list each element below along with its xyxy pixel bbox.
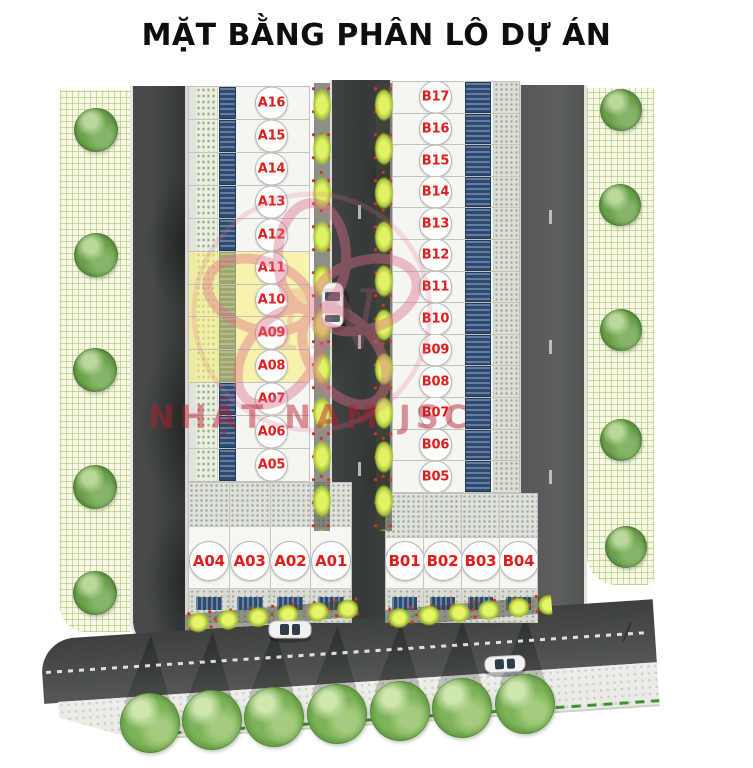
lot-courtyard bbox=[493, 461, 519, 492]
lot-B14[interactable]: B14 bbox=[393, 177, 519, 209]
lot-A07[interactable]: A07 bbox=[189, 383, 309, 416]
roof-panel bbox=[465, 430, 491, 461]
tree bbox=[495, 674, 555, 734]
lot-B13[interactable]: B13 bbox=[393, 208, 519, 240]
lot-courtyard bbox=[196, 383, 218, 415]
lot-label: A08 bbox=[258, 359, 286, 374]
roof-panel bbox=[465, 461, 491, 492]
lot-marker-B08[interactable]: B08 bbox=[419, 366, 452, 398]
lot-A12[interactable]: A12 bbox=[189, 219, 309, 252]
lot-B10[interactable]: B10 bbox=[393, 303, 519, 335]
lane-dash bbox=[358, 462, 361, 476]
roof-panel bbox=[219, 317, 236, 349]
roof-panel bbox=[219, 120, 236, 152]
tree bbox=[73, 465, 117, 509]
tree bbox=[74, 233, 118, 277]
lot-edge bbox=[189, 285, 196, 317]
lot-marker-A05[interactable]: A05 bbox=[255, 449, 288, 481]
lot-marker-B14[interactable]: B14 bbox=[419, 177, 452, 209]
lot-courtyard bbox=[196, 120, 218, 152]
lot-edge bbox=[189, 383, 196, 415]
lot-edge bbox=[189, 317, 196, 349]
lot-edge bbox=[189, 219, 196, 251]
subdivision-plan-page: MẶT BẰNG PHÂN LÔ DỰ ÁN A16A15A14A13A12A1… bbox=[0, 0, 753, 768]
lot-label: B12 bbox=[422, 248, 449, 263]
lot-edge bbox=[189, 449, 196, 481]
lot-marker-B06[interactable]: B06 bbox=[419, 430, 452, 462]
building-backs bbox=[230, 483, 270, 527]
lot-marker-A08[interactable]: A08 bbox=[255, 350, 288, 382]
roof-panel bbox=[465, 145, 491, 176]
lot-label: A12 bbox=[258, 227, 286, 242]
lot-courtyard bbox=[493, 240, 519, 271]
lot-courtyard bbox=[493, 430, 519, 461]
lot-label: A02 bbox=[274, 552, 306, 570]
lot-marker-A03[interactable]: A03 bbox=[230, 541, 270, 581]
lot-label: B07 bbox=[422, 406, 449, 421]
lot-label: B11 bbox=[422, 279, 449, 294]
building-backs bbox=[462, 494, 499, 538]
roof-panel bbox=[219, 285, 236, 317]
lot-A11[interactable]: A11 bbox=[189, 252, 309, 285]
lot-edge bbox=[189, 252, 196, 284]
lot-marker-A07[interactable]: A07 bbox=[255, 383, 288, 415]
lot-label: B15 bbox=[422, 153, 449, 168]
lot-edge bbox=[189, 416, 196, 448]
lot-A05[interactable]: A05 bbox=[189, 449, 309, 481]
lot-A06[interactable]: A06 bbox=[189, 416, 309, 449]
lot-edge bbox=[189, 153, 196, 185]
lot-B09[interactable]: B09 bbox=[393, 335, 519, 367]
hedge-block-b-left bbox=[371, 83, 397, 531]
lot-label: A05 bbox=[258, 458, 286, 473]
lane-dash bbox=[358, 205, 361, 219]
roof-panel bbox=[219, 383, 236, 415]
left-road bbox=[130, 86, 188, 648]
roof-panel bbox=[219, 252, 236, 284]
lot-A03[interactable]: A03 bbox=[230, 483, 271, 622]
building-backs bbox=[500, 494, 537, 538]
lot-courtyard bbox=[493, 303, 519, 334]
tree bbox=[307, 684, 367, 744]
tree bbox=[244, 687, 304, 747]
lot-marker-B11[interactable]: B11 bbox=[419, 272, 452, 304]
lot-B06[interactable]: B06 bbox=[393, 430, 519, 462]
roof-panel bbox=[465, 303, 491, 334]
roof-panel bbox=[465, 177, 491, 208]
lot-B16[interactable]: B16 bbox=[393, 114, 519, 146]
building-backs bbox=[189, 483, 229, 527]
lot-marker-A01[interactable]: A01 bbox=[311, 541, 351, 581]
lot-courtyard bbox=[493, 335, 519, 366]
lot-marker-A06[interactable]: A06 bbox=[255, 416, 288, 448]
roof-panel bbox=[465, 335, 491, 366]
lot-courtyard bbox=[196, 350, 218, 382]
lot-courtyard bbox=[196, 285, 218, 317]
lot-marker-B09[interactable]: B09 bbox=[419, 335, 452, 367]
lot-courtyard bbox=[196, 87, 218, 119]
tree bbox=[432, 678, 492, 738]
lot-label: B01 bbox=[389, 552, 421, 570]
lot-label: A07 bbox=[258, 392, 286, 407]
lot-label: A15 bbox=[258, 128, 286, 143]
lot-courtyard bbox=[196, 449, 218, 481]
tree bbox=[74, 108, 118, 152]
lot-label: B02 bbox=[427, 552, 459, 570]
lot-B07[interactable]: B07 bbox=[393, 398, 519, 430]
lot-A16[interactable]: A16 bbox=[189, 87, 309, 120]
lot-label: B10 bbox=[422, 311, 449, 326]
lot-A15[interactable]: A15 bbox=[189, 120, 309, 153]
lot-A04[interactable]: A04 bbox=[189, 483, 230, 622]
lot-edge bbox=[189, 186, 196, 218]
roof-panel bbox=[465, 240, 491, 271]
roof-panel bbox=[465, 366, 491, 397]
lot-B17[interactable]: B17 bbox=[393, 82, 519, 114]
building-backs bbox=[424, 494, 461, 538]
lot-B05[interactable]: B05 bbox=[393, 461, 519, 492]
lot-B08[interactable]: B08 bbox=[393, 366, 519, 398]
lot-A10[interactable]: A10 bbox=[189, 285, 309, 318]
lot-marker-B02[interactable]: B02 bbox=[424, 541, 462, 581]
lot-marker-A11[interactable]: A11 bbox=[255, 252, 288, 284]
lot-marker-A10[interactable]: A10 bbox=[255, 285, 288, 317]
car-middle-road bbox=[317, 278, 349, 334]
block-a-column: A16A15A14A13A12A11A10A09A08A07A06A05 bbox=[188, 86, 310, 482]
lot-courtyard bbox=[196, 416, 218, 448]
lot-courtyard bbox=[493, 145, 519, 176]
lot-marker-A16[interactable]: A16 bbox=[255, 87, 288, 119]
lot-label: B13 bbox=[422, 216, 449, 231]
lot-marker-B01[interactable]: B01 bbox=[386, 541, 424, 581]
lot-label: A01 bbox=[315, 552, 347, 570]
lot-A14[interactable]: A14 bbox=[189, 153, 309, 186]
roof-panel bbox=[219, 87, 236, 119]
lot-marker-A12[interactable]: A12 bbox=[255, 219, 288, 251]
lot-label: A09 bbox=[258, 326, 286, 341]
roof-panel bbox=[219, 219, 236, 251]
lane-dash bbox=[549, 470, 552, 484]
lot-courtyard bbox=[493, 366, 519, 397]
lot-marker-B15[interactable]: B15 bbox=[419, 145, 452, 177]
lot-marker-B05[interactable]: B05 bbox=[419, 461, 452, 492]
tree bbox=[73, 348, 117, 392]
lot-marker-A15[interactable]: A15 bbox=[255, 120, 288, 152]
lot-label: A11 bbox=[258, 260, 286, 275]
lot-marker-B12[interactable]: B12 bbox=[419, 240, 452, 272]
lot-marker-B17[interactable]: B17 bbox=[419, 82, 452, 114]
lot-B15[interactable]: B15 bbox=[393, 145, 519, 177]
lot-marker-B03[interactable]: B03 bbox=[462, 541, 500, 581]
lot-marker-A13[interactable]: A13 bbox=[255, 186, 288, 218]
lot-label: A10 bbox=[258, 293, 286, 308]
lot-edge bbox=[189, 120, 196, 152]
lot-courtyard bbox=[493, 272, 519, 303]
lot-label: A14 bbox=[258, 161, 286, 176]
lot-marker-B10[interactable]: B10 bbox=[419, 303, 452, 335]
lot-label: B14 bbox=[422, 185, 449, 200]
lot-label: B05 bbox=[422, 469, 449, 484]
lot-label: B16 bbox=[422, 121, 449, 136]
lot-label: A13 bbox=[258, 194, 286, 209]
lot-marker-B13[interactable]: B13 bbox=[419, 208, 452, 240]
roof-panel bbox=[465, 82, 491, 113]
lot-label: A03 bbox=[234, 552, 266, 570]
lane-dash bbox=[549, 210, 552, 224]
lot-courtyard bbox=[493, 177, 519, 208]
roof-panel bbox=[465, 272, 491, 303]
tree bbox=[600, 309, 642, 351]
tree bbox=[599, 184, 641, 226]
tree bbox=[120, 693, 180, 753]
lot-label: A04 bbox=[193, 552, 225, 570]
lot-marker-B16[interactable]: B16 bbox=[419, 114, 452, 146]
lot-edge bbox=[189, 350, 196, 382]
lot-B12[interactable]: B12 bbox=[393, 240, 519, 272]
car-bottom-road-left bbox=[266, 618, 314, 644]
building-backs bbox=[271, 483, 311, 527]
lot-marker-A02[interactable]: A02 bbox=[271, 541, 311, 581]
lot-marker-A14[interactable]: A14 bbox=[255, 153, 288, 185]
roof-panel bbox=[219, 153, 236, 185]
lot-label: B06 bbox=[422, 438, 449, 453]
tree bbox=[370, 681, 430, 741]
lot-courtyard bbox=[196, 317, 218, 349]
lot-A09[interactable]: A09 bbox=[189, 317, 309, 350]
car-bottom-road-right bbox=[481, 652, 528, 679]
lot-label: B17 bbox=[422, 90, 449, 105]
lot-courtyard bbox=[196, 219, 218, 251]
lot-courtyard bbox=[493, 114, 519, 145]
tree bbox=[605, 526, 647, 568]
roof-panel bbox=[465, 114, 491, 145]
lot-courtyard bbox=[493, 208, 519, 239]
lot-label: B09 bbox=[422, 343, 449, 358]
lot-marker-A09[interactable]: A09 bbox=[255, 317, 288, 349]
tree bbox=[182, 690, 242, 750]
lot-marker-B04[interactable]: B04 bbox=[500, 541, 537, 581]
roof-panel bbox=[219, 350, 236, 382]
roof-panel bbox=[465, 398, 491, 429]
page-title: MẶT BẰNG PHÂN LÔ DỰ ÁN bbox=[0, 18, 753, 53]
lot-courtyard bbox=[493, 398, 519, 429]
tree bbox=[600, 419, 642, 461]
lot-A13[interactable]: A13 bbox=[189, 186, 309, 219]
lot-marker-A04[interactable]: A04 bbox=[189, 541, 229, 581]
roof-panel bbox=[219, 449, 236, 481]
lot-label: A06 bbox=[258, 425, 286, 440]
lot-label: A16 bbox=[258, 95, 286, 110]
lane-dash bbox=[549, 340, 552, 354]
lot-label: B04 bbox=[503, 552, 535, 570]
roof-panel bbox=[465, 208, 491, 239]
roof-panel bbox=[219, 416, 236, 448]
tree bbox=[600, 89, 642, 131]
lot-label: B08 bbox=[422, 374, 449, 389]
lot-marker-B07[interactable]: B07 bbox=[419, 398, 452, 430]
lot-B11[interactable]: B11 bbox=[393, 272, 519, 304]
lot-edge bbox=[189, 87, 196, 119]
lot-courtyard bbox=[196, 252, 218, 284]
tree bbox=[73, 571, 117, 615]
block-b-column: B17B16B15B14B13B12B11B10B09B08B07B06B05 bbox=[392, 81, 520, 493]
lot-label: B03 bbox=[465, 552, 497, 570]
lot-courtyard bbox=[493, 82, 519, 113]
lane-dash bbox=[358, 335, 361, 349]
lot-courtyard bbox=[196, 153, 218, 185]
lot-courtyard bbox=[196, 186, 218, 218]
lot-A08[interactable]: A08 bbox=[189, 350, 309, 383]
roof-panel bbox=[219, 186, 236, 218]
